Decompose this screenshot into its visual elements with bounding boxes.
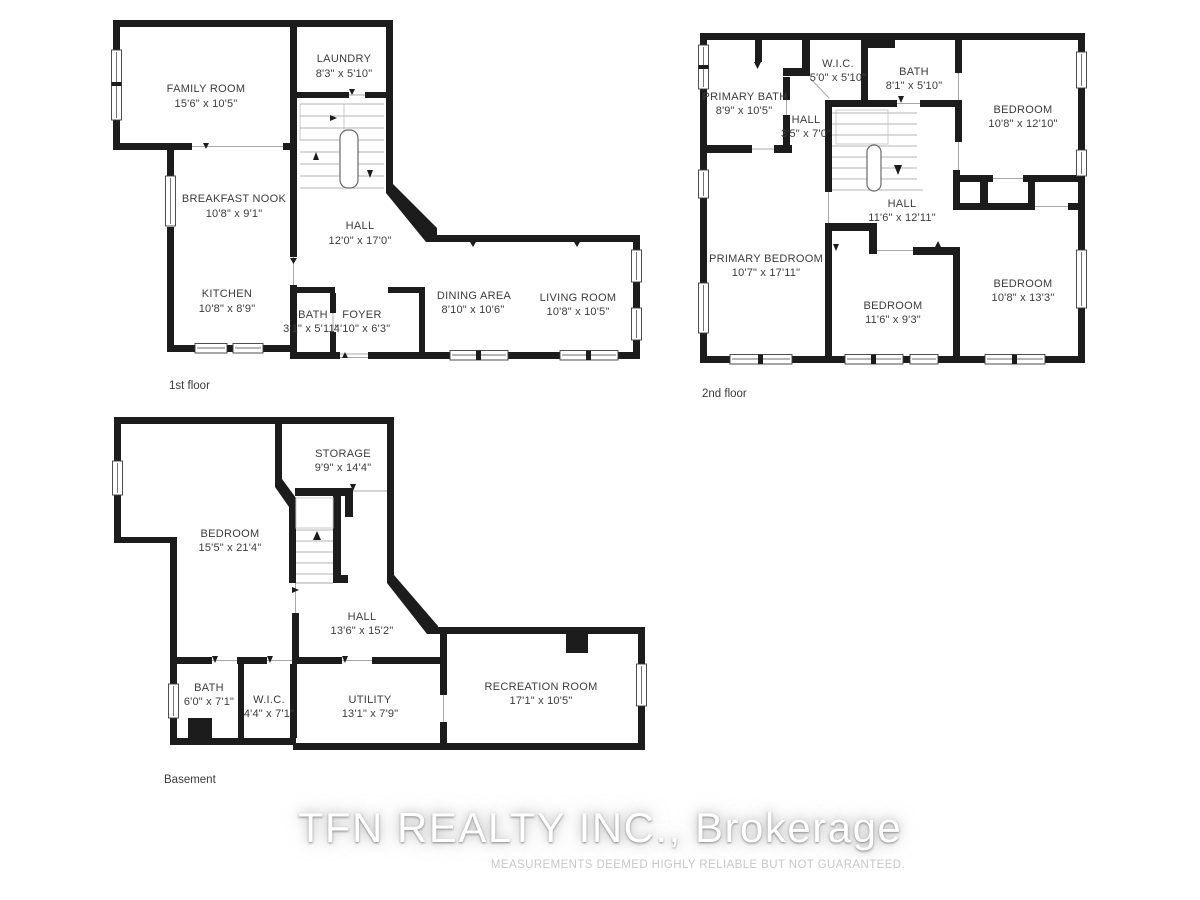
room-dims-label: 10'8" x 13'3" bbox=[992, 292, 1055, 304]
stairs-2nd bbox=[832, 110, 923, 191]
room-name-label: BEDROOM bbox=[994, 278, 1053, 290]
room-name-label: BATH bbox=[899, 66, 929, 78]
room-dims-label: 13'1" x 7'9" bbox=[342, 708, 399, 720]
room-dims-label: 12'0" x 17'0" bbox=[329, 235, 392, 247]
room-name-label: PRIMARY BATH bbox=[703, 91, 788, 103]
floor-basement: STORAGE 9'9" x 14'4" BEDROOM 15'5" x 21'… bbox=[113, 417, 647, 786]
room-dims-label: 15'5" x 21'4" bbox=[199, 542, 262, 554]
room-name-label: BEDROOM bbox=[864, 300, 923, 312]
room-name-label: KITCHEN bbox=[202, 288, 252, 300]
stairs-basement bbox=[296, 498, 333, 574]
room-dims-label: 11'6" x 12'11" bbox=[868, 212, 936, 224]
watermark-disclaimer: MEASUREMENTS DEEMED HIGHLY RELIABLE BUT … bbox=[398, 859, 998, 871]
room-dims-label: 3'1" x 5'11" bbox=[283, 323, 339, 335]
floor-1st: FAMILY ROOM 15'6" x 10'5" LAUNDRY 8'3" x… bbox=[112, 20, 642, 392]
room-name-label: PRIMARY BEDROOM bbox=[709, 253, 823, 265]
stairs-1st bbox=[300, 104, 384, 188]
room-name-label: UTILITY bbox=[348, 694, 391, 706]
room-labels-2nd: PRIMARY BATH 8'9" x 10'5" W.I.C. 5'0" x … bbox=[703, 58, 1058, 326]
room-name-label: BATH bbox=[194, 682, 224, 694]
room-name-label: FAMILY ROOM bbox=[167, 83, 246, 95]
room-dims-label: 15'6" x 10'5" bbox=[175, 98, 238, 110]
floor-caption-2nd: 2nd floor bbox=[702, 388, 747, 400]
room-name-label: HALL bbox=[346, 220, 375, 232]
room-name-label: STORAGE bbox=[315, 448, 371, 460]
room-name-label: BREAKFAST NOOK bbox=[182, 193, 287, 205]
room-name-label: DINING AREA bbox=[437, 290, 512, 302]
windows-basement bbox=[113, 461, 647, 718]
room-dims-label: 10'8" x 8'9" bbox=[199, 303, 256, 315]
room-dims-label: 4'4" x 7'1" bbox=[244, 708, 294, 720]
room-name-label: HALL bbox=[888, 198, 917, 210]
room-dims-label: 10'8" x 9'1" bbox=[206, 208, 263, 220]
room-dims-label: 8'3" x 5'10" bbox=[316, 68, 373, 80]
room-dims-label: 8'10" x 10'6" bbox=[442, 304, 505, 316]
room-dims-label: 10'8" x 10'5" bbox=[547, 306, 610, 318]
room-name-label: FOYER bbox=[342, 309, 381, 321]
floor-2nd: PRIMARY BATH 8'9" x 10'5" W.I.C. 5'0" x … bbox=[699, 33, 1087, 400]
room-dims-label: 3'5" x 7'0" bbox=[781, 128, 831, 140]
room-dims-label: 10'7" x 17'11" bbox=[732, 267, 800, 279]
room-dims-label: 11'6" x 9'3" bbox=[865, 314, 921, 326]
room-name-label: HALL bbox=[792, 114, 821, 126]
room-dims-label: 17'1" x 10'5" bbox=[510, 695, 573, 707]
room-dims-label: 5'0" x 5'10" bbox=[810, 72, 867, 84]
room-dims-label: 13'6" x 15'2" bbox=[331, 625, 394, 637]
room-dims-label: 9'9" x 14'4" bbox=[315, 462, 372, 474]
room-dims-label: 8'1" x 5'10" bbox=[886, 80, 943, 92]
room-name-label: BEDROOM bbox=[994, 104, 1053, 116]
room-name-label: BATH bbox=[298, 309, 328, 321]
floorplan-page: { "watermark": { "brand": "TFN REALTY IN… bbox=[0, 0, 1200, 900]
floorplan-canvas: FAMILY ROOM 15'6" x 10'5" LAUNDRY 8'3" x… bbox=[0, 0, 1200, 900]
room-dims-label: 6'0" x 7'1" bbox=[184, 696, 234, 708]
room-dims-label: 4'10" x 6'3" bbox=[334, 323, 391, 335]
room-dims-label: 8'9" x 10'5" bbox=[716, 105, 773, 117]
room-name-label: W.I.C. bbox=[253, 694, 285, 706]
room-name-label: HALL bbox=[348, 611, 377, 623]
floor-caption-1st: 1st floor bbox=[169, 380, 210, 392]
room-name-label: BEDROOM bbox=[201, 528, 260, 540]
room-name-label: RECREATION ROOM bbox=[484, 681, 597, 693]
room-name-label: W.I.C. bbox=[822, 58, 854, 70]
watermark-brand: TFN REALTY INC., Brokerage bbox=[0, 804, 1200, 852]
room-dims-label: 10'8" x 12'10" bbox=[988, 118, 1057, 130]
room-name-label: LAUNDRY bbox=[317, 53, 372, 65]
room-name-label: LIVING ROOM bbox=[540, 292, 617, 304]
floor-caption-basement: Basement bbox=[164, 774, 217, 786]
